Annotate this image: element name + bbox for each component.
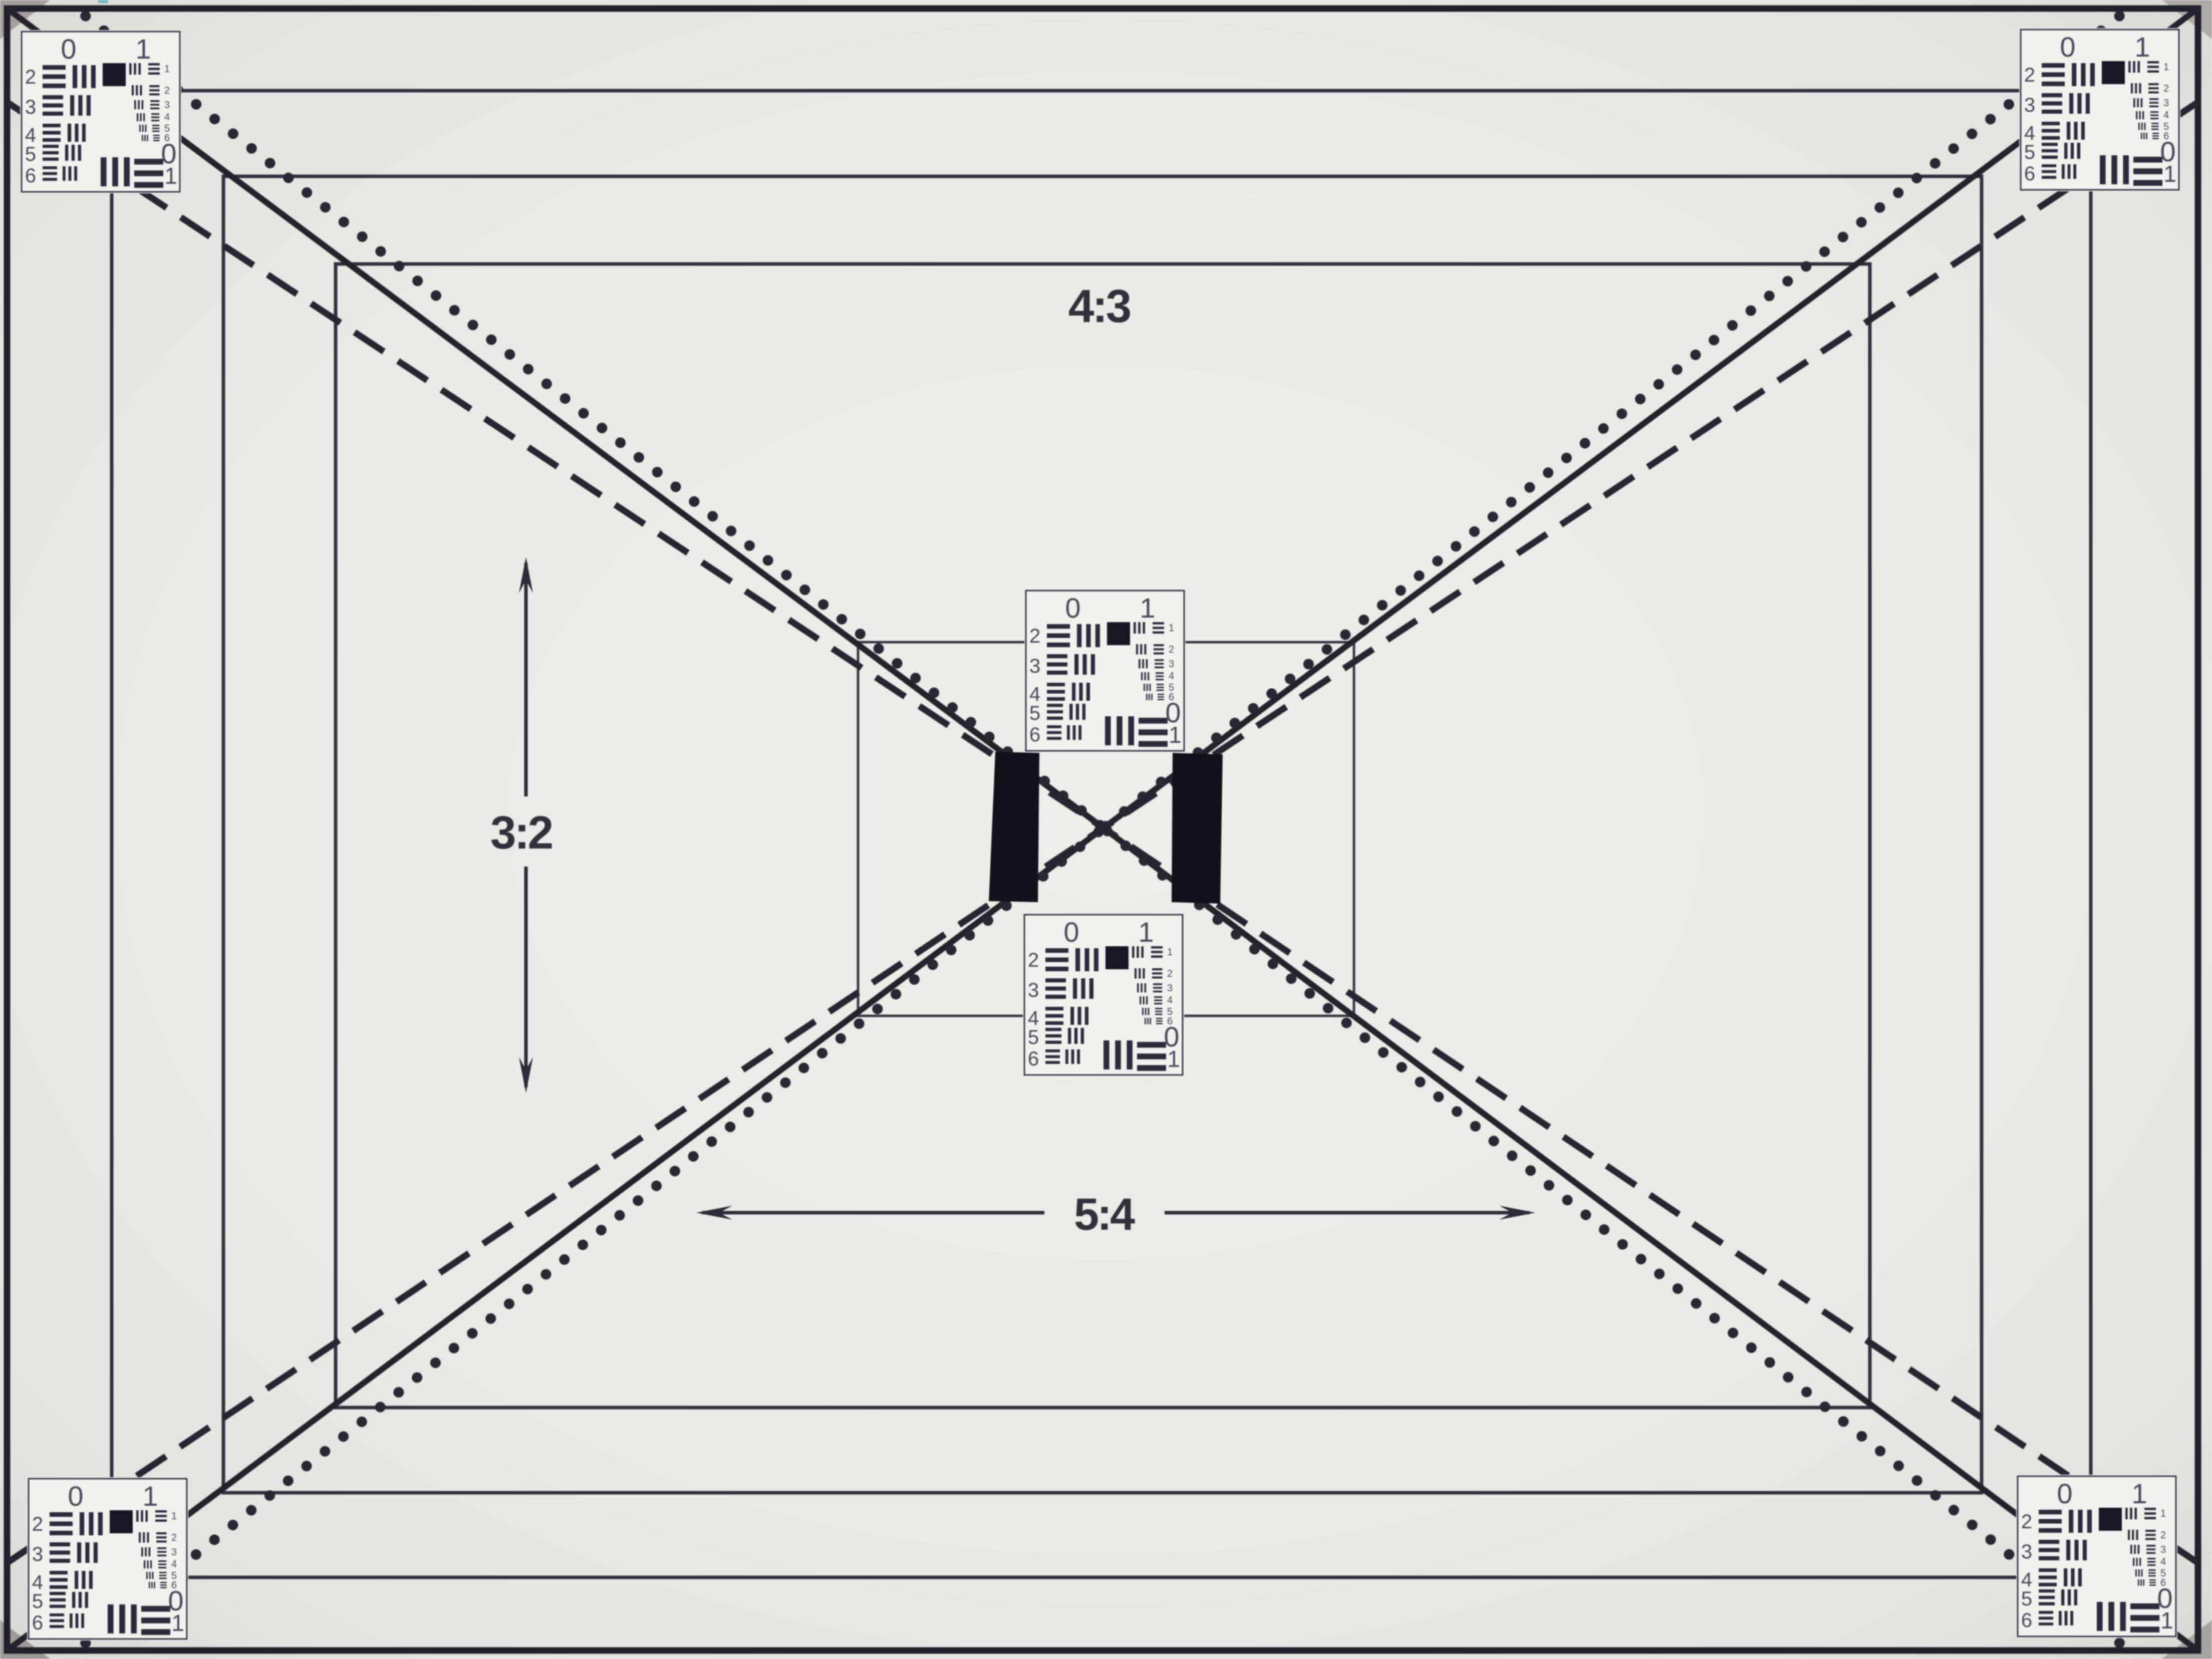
svg-text:3:2: 3:2 <box>490 806 552 859</box>
svg-text:4:3: 4:3 <box>1068 280 1131 332</box>
svg-text:5:4: 5:4 <box>1074 1190 1135 1240</box>
